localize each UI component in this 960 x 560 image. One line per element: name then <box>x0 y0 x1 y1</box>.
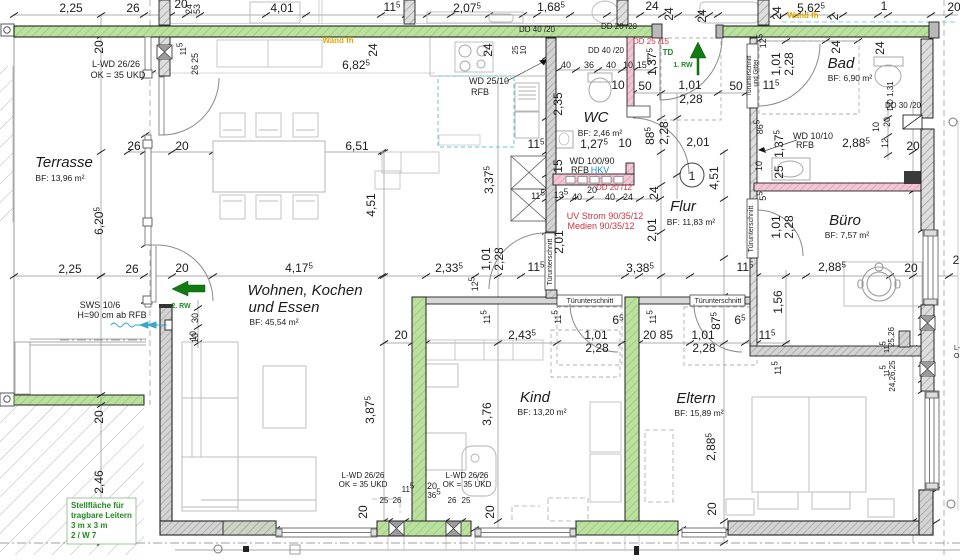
svg-text:Eltern: Eltern <box>676 390 715 407</box>
svg-text:2,01: 2,01 <box>552 230 566 254</box>
svg-text:25,26: 25,26 <box>887 326 896 347</box>
svg-text:20: 20 <box>356 505 370 519</box>
svg-text:Stellfläche für: Stellfläche für <box>71 501 124 510</box>
svg-text:DD 30 /20: DD 30 /20 <box>885 101 922 110</box>
svg-text:50: 50 <box>638 79 652 93</box>
svg-text:2: 2 <box>827 13 841 20</box>
svg-text:BF: 11,83 m²: BF: 11,83 m² <box>667 217 716 227</box>
svg-text:24: 24 <box>623 192 633 202</box>
svg-text:25: 25 <box>772 165 786 179</box>
svg-text:BF: 13,96 m²: BF: 13,96 m² <box>35 173 84 183</box>
svg-text:20: 20 <box>92 40 106 54</box>
svg-text:20: 20 <box>947 0 960 14</box>
svg-text:30: 30 <box>190 313 200 323</box>
svg-text:1,01: 1,01 <box>769 52 783 76</box>
svg-text:12: 12 <box>880 138 890 148</box>
svg-text:3 m x 3 m: 3 m x 3 m <box>71 521 107 530</box>
svg-text:L-WD 26/26: L-WD 26/26 <box>92 59 140 69</box>
svg-text:26: 26 <box>393 496 402 505</box>
svg-text:1. RW: 1. RW <box>673 62 693 69</box>
svg-text:1,01: 1,01 <box>769 215 783 239</box>
svg-text:WC: WC <box>584 109 609 126</box>
svg-text:BF: 15,89 m²: BF: 15,89 m² <box>674 408 723 418</box>
svg-text:26: 26 <box>190 65 200 75</box>
svg-text:24: 24 <box>645 0 659 13</box>
svg-text:24: 24 <box>695 9 709 23</box>
svg-text:15: 15 <box>551 159 565 173</box>
svg-text:10: 10 <box>618 136 632 150</box>
svg-text:53: 53 <box>192 4 202 14</box>
svg-text:DD 20 /20: DD 20 /20 <box>601 22 638 31</box>
svg-text:20: 20 <box>882 117 892 127</box>
svg-text:36: 36 <box>584 60 594 70</box>
svg-text:20 85: 20 85 <box>643 328 673 342</box>
svg-text:L-W: L-W <box>954 345 960 352</box>
svg-text:HKV: HKV <box>591 165 610 175</box>
svg-text:20: 20 <box>92 410 106 424</box>
svg-text:10: 10 <box>611 78 625 92</box>
svg-text:1,01: 1,01 <box>479 247 493 271</box>
svg-text:Wand fh: Wand fh <box>322 36 353 45</box>
svg-text:10: 10 <box>871 122 881 132</box>
svg-text:Medien 90/35/12: Medien 90/35/12 <box>567 221 634 231</box>
svg-text:H=90 cm ab RFB: H=90 cm ab RFB <box>77 310 146 320</box>
svg-text:26: 26 <box>125 262 139 276</box>
svg-text:RFB: RFB <box>571 165 589 175</box>
svg-text:20: 20 <box>904 261 918 275</box>
svg-text:BF: 13,20 m²: BF: 13,20 m² <box>517 407 566 417</box>
svg-text:OK = 35 UKD: OK = 35 UKD <box>91 70 146 80</box>
svg-text:3,76: 3,76 <box>480 402 494 426</box>
svg-text:24: 24 <box>770 6 784 20</box>
svg-text:20: 20 <box>906 139 920 153</box>
svg-text:2,28: 2,28 <box>492 247 506 271</box>
svg-text:OK = 35 UKD: OK = 35 UKD <box>443 480 492 489</box>
svg-text:2,01: 2,01 <box>686 135 710 149</box>
svg-text:2,28: 2,28 <box>657 121 671 145</box>
svg-text:Türunterschnitt: Türunterschnitt <box>547 239 554 286</box>
svg-text:und Essen: und Essen <box>249 299 320 316</box>
svg-text:4,01: 4,01 <box>270 1 294 15</box>
svg-text:L-WD 26/26: L-WD 26/26 <box>342 471 385 480</box>
svg-text:und Gitter: und Gitter <box>753 59 760 86</box>
svg-text:2. RW: 2. RW <box>171 303 191 310</box>
svg-text:RFB: RFB <box>471 87 489 97</box>
svg-text:Wohnen, Kochen: Wohnen, Kochen <box>247 282 362 299</box>
svg-text:4,51: 4,51 <box>707 166 721 190</box>
svg-text:2,25: 2,25 <box>58 262 82 276</box>
svg-text:24: 24 <box>366 43 380 57</box>
svg-text:DD 20 /12: DD 20 /12 <box>596 183 633 192</box>
svg-text:tragbare Leitern: tragbare Leitern <box>71 511 132 520</box>
svg-text:25: 25 <box>462 496 471 505</box>
svg-text:2,28: 2,28 <box>782 52 796 76</box>
svg-text:2,28: 2,28 <box>679 92 703 106</box>
svg-text:10: 10 <box>623 60 633 70</box>
svg-text:4,51: 4,51 <box>364 193 378 217</box>
svg-text:20: 20 <box>394 328 408 342</box>
svg-text:SWS 10/6: SWS 10/6 <box>80 300 121 310</box>
svg-text:DD 25 /15: DD 25 /15 <box>633 37 670 46</box>
svg-text:1,01: 1,01 <box>678 78 702 92</box>
svg-text:40: 40 <box>606 60 616 70</box>
svg-text:Türunterschnitt: Türunterschnitt <box>695 298 742 305</box>
svg-text:24: 24 <box>481 43 495 57</box>
svg-text:24: 24 <box>662 7 676 21</box>
svg-text:1,01: 1,01 <box>584 328 608 342</box>
svg-text:DD 40 /20: DD 40 /20 <box>588 46 625 55</box>
svg-text:40: 40 <box>572 192 582 202</box>
svg-text:RFB: RFB <box>796 140 814 150</box>
svg-text:2,46: 2,46 <box>92 470 106 494</box>
svg-text:25: 25 <box>380 496 389 505</box>
svg-text:20: 20 <box>705 502 719 516</box>
svg-text:BF: 6,90 m²: BF: 6,90 m² <box>828 73 873 83</box>
svg-text:24: 24 <box>647 186 661 200</box>
svg-text:26: 26 <box>448 496 457 505</box>
svg-text:40: 40 <box>561 60 571 70</box>
svg-text:2,28: 2,28 <box>782 215 796 239</box>
svg-text:10: 10 <box>519 45 528 54</box>
svg-text:20: 20 <box>175 139 189 153</box>
svg-text:OK: OK <box>954 353 960 360</box>
svg-text:2 / W 7: 2 / W 7 <box>71 531 97 540</box>
svg-text:Büro: Büro <box>829 212 861 229</box>
svg-text:2: 2 <box>953 253 960 267</box>
svg-text:Bad: Bad <box>828 55 855 72</box>
svg-text:L-WD 26/26: L-WD 26/26 <box>446 471 489 480</box>
svg-text:10: 10 <box>754 161 764 171</box>
svg-text:25: 25 <box>190 53 200 63</box>
svg-text:Flur: Flur <box>670 198 697 215</box>
svg-text:26: 26 <box>126 1 140 15</box>
svg-text:Türunterschnitt: Türunterschnitt <box>748 206 755 253</box>
svg-text:OK = 35 UKD: OK = 35 UKD <box>339 480 388 489</box>
svg-text:BF: 7,57 m²: BF: 7,57 m² <box>825 230 870 240</box>
svg-text:1: 1 <box>881 0 888 13</box>
svg-text:TD: TD <box>663 48 674 57</box>
svg-text:6,51: 6,51 <box>345 139 369 153</box>
svg-text:24: 24 <box>829 40 843 54</box>
svg-text:20: 20 <box>175 261 189 275</box>
svg-text:40: 40 <box>605 192 615 202</box>
svg-text:DD 40 /20: DD 40 /20 <box>519 25 556 34</box>
svg-text:UV Strom 90/35/12: UV Strom 90/35/12 <box>567 211 644 221</box>
svg-text:26: 26 <box>127 139 141 153</box>
svg-text:1: 1 <box>689 169 696 183</box>
svg-text:24: 24 <box>873 41 887 55</box>
svg-text:20: 20 <box>483 505 497 519</box>
svg-text:2,28: 2,28 <box>692 341 716 355</box>
svg-text:10: 10 <box>188 331 198 341</box>
svg-text:Kind: Kind <box>520 389 551 406</box>
svg-text:Wand fh: Wand fh <box>787 11 818 20</box>
svg-text:WD 25/10: WD 25/10 <box>469 76 509 86</box>
svg-text:2,25: 2,25 <box>59 1 83 15</box>
svg-text:Terrasse: Terrasse <box>35 154 93 171</box>
svg-text:2,35: 2,35 <box>551 92 565 116</box>
svg-text:2,01: 2,01 <box>645 218 659 242</box>
svg-text:BF: 45,54 m²: BF: 45,54 m² <box>249 317 298 327</box>
svg-text:2,28: 2,28 <box>585 341 609 355</box>
svg-text:50: 50 <box>729 79 743 93</box>
svg-text:Türunterschnitt: Türunterschnitt <box>567 298 614 305</box>
svg-text:1,56: 1,56 <box>771 290 785 314</box>
